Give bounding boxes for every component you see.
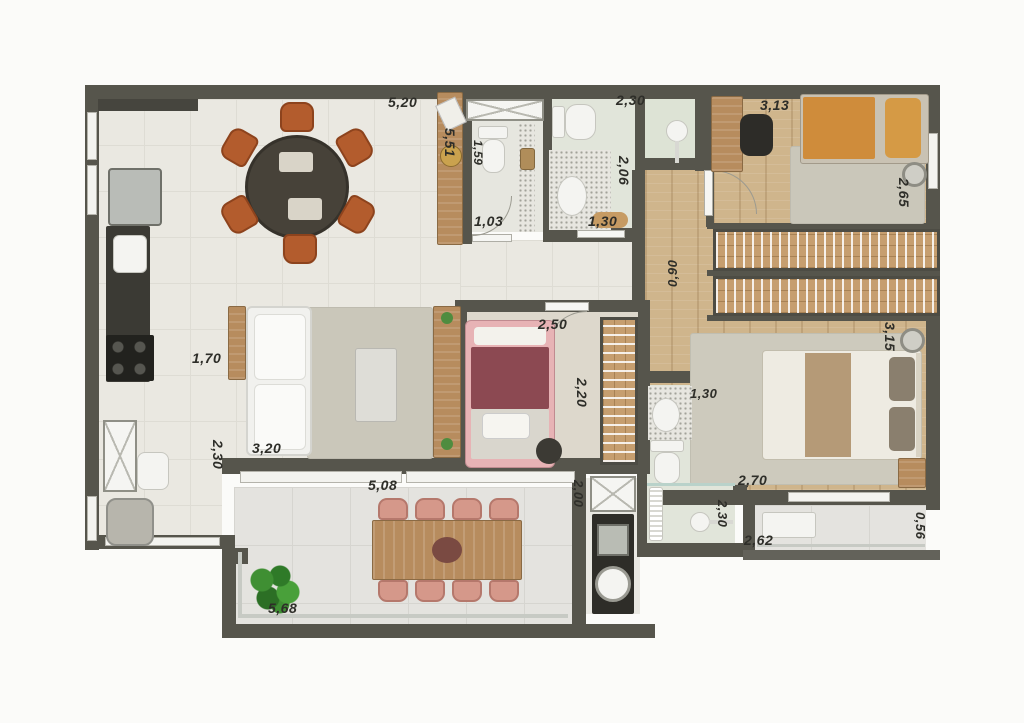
bed-master-pillow-2: [889, 407, 915, 451]
shelf-behind-sofa: [228, 306, 246, 380]
window-master-balcony: [788, 492, 890, 502]
balcony-chair-2: [415, 498, 445, 520]
armchair-nook: [106, 498, 154, 546]
door-bedroom2: [545, 302, 589, 311]
wc-sink: [520, 148, 535, 170]
wc-granite-strip: [518, 123, 535, 232]
dim-bath1-width: 2,30: [616, 92, 645, 108]
dim-bath1-inner: 1,30: [588, 213, 617, 229]
floor-plan: 5,20 2,30 3,13 5,51 1,59 1,03 1,30 2,06 …: [0, 0, 1024, 723]
dim-balcony2-depth: 0,56: [913, 512, 928, 539]
bed-single-pillow: [885, 98, 921, 158]
dim-service-depth: 2,00: [571, 480, 586, 507]
bath2-sink: [652, 398, 680, 432]
bed-master-pillow-1: [889, 357, 915, 401]
wardrobe-master: [713, 276, 940, 316]
dim-sideboard: 5,51: [442, 128, 458, 157]
shower1-head: [666, 120, 688, 142]
balcony-chair-7: [452, 580, 482, 602]
bed-master-headboard: [916, 353, 921, 457]
dim-master-width: 2,70: [738, 472, 767, 488]
dim-bath1-depth: 2,06: [616, 156, 632, 185]
coffee-table: [355, 348, 397, 422]
dim-living-depth: 2,30: [210, 440, 226, 469]
dim-wc-width: 1,03: [474, 213, 503, 229]
service-tank: [597, 524, 629, 556]
cooktop: [106, 335, 154, 381]
wardrobe-bedroom1: [713, 229, 940, 271]
dim-kitchen-pass: 1,70: [192, 350, 221, 366]
desk-chair: [740, 114, 773, 156]
dim-bath2-width: 1,30: [690, 386, 717, 401]
window-left-3: [87, 496, 97, 541]
dim-wc-depth: 1,59: [471, 140, 485, 165]
wall-bath2-bottom: [637, 543, 753, 557]
balcony-sliding-door-2: [406, 471, 575, 483]
bath2-toilet-bowl: [654, 452, 680, 484]
balcony-railing-left: [238, 552, 242, 618]
dim-master-depth: 3,15: [882, 322, 898, 351]
tall-cabinet: [103, 420, 137, 492]
shower1-arm: [675, 141, 679, 163]
fridge: [108, 168, 162, 226]
bed-single: [800, 94, 929, 164]
wc-overhead-cabinet: [466, 99, 544, 121]
dim-balcony2-width: 2,62: [744, 532, 773, 548]
shower2-head: [690, 512, 710, 532]
side-table-nook: [137, 452, 169, 490]
dim-bedroom1-width: 3,13: [760, 97, 789, 113]
balcony-chair-5: [378, 580, 408, 602]
dim-sofa-width: 3,20: [252, 440, 281, 456]
wall-corridor-left: [632, 170, 645, 302]
balcony2-railing: [757, 544, 925, 547]
window-left-1: [87, 112, 97, 160]
balcony-centerpiece: [432, 537, 462, 563]
sofa-cushion-1: [254, 314, 306, 380]
bed2-small-pillow: [482, 413, 530, 439]
sofa: [246, 306, 312, 456]
bed-master: [762, 350, 922, 460]
door-bedroom1: [704, 170, 713, 216]
bed-master-throw: [805, 353, 851, 457]
dim-balcony-open: 5,08: [368, 477, 397, 493]
dim-bath2-depth: 2,30: [715, 500, 730, 527]
kitchen-sink: [113, 235, 147, 273]
door-bathroom1: [577, 230, 625, 238]
washing-machine: [595, 566, 631, 602]
bath2-shower-bench: [649, 487, 663, 541]
wall-shower1-bottom: [635, 158, 707, 170]
ceiling-fan-2: [900, 328, 925, 353]
window-bedroom1: [928, 133, 938, 189]
place-setting-2: [288, 198, 322, 220]
bed2-blanket: [471, 347, 549, 409]
dim-dining-width: 5,20: [388, 94, 417, 110]
wc-toilet-tank: [478, 126, 508, 139]
wall-balcony-corner: [222, 548, 248, 564]
desk: [711, 96, 743, 172]
wc-toilet-bowl: [482, 139, 505, 173]
place-setting-1: [279, 152, 313, 172]
balcony-chair-8: [489, 580, 519, 602]
floor-hallway: [460, 240, 640, 302]
dim-bedroom2-depth: 2,20: [574, 378, 590, 407]
bath2-shower-glass: [647, 483, 735, 486]
balcony-chair-3: [452, 498, 482, 520]
wall-balcony2-bottom: [743, 550, 940, 560]
dining-table: [245, 135, 349, 239]
bath1-toilet-tank: [552, 106, 565, 138]
dining-chair-1: [280, 102, 314, 132]
window-left-2: [87, 165, 97, 215]
dining-chair-4: [283, 234, 317, 264]
console-plant-1: [441, 312, 453, 324]
bath1-toilet-bowl: [565, 104, 596, 140]
service-cabinet: [590, 476, 636, 512]
balcony-chair-6: [415, 580, 445, 602]
dim-bedroom2-width: 2,50: [538, 316, 567, 332]
balcony-chair-4: [489, 498, 519, 520]
wall-balcony-bottom: [222, 624, 655, 638]
dim-bedroom1-depth: 2,65: [896, 178, 912, 207]
kitchen-upper-cabinet: [98, 99, 198, 111]
tv-console: [433, 306, 461, 458]
nightstand: [898, 458, 926, 488]
console-plant-2: [441, 438, 453, 450]
bath1-sink: [557, 176, 587, 216]
dim-balcony-width: 5,68: [268, 600, 297, 616]
bed-single-blanket: [803, 97, 875, 159]
bedroom2-stool: [536, 438, 562, 464]
bath2-toilet-tank: [650, 440, 684, 452]
dim-corridor: 0,90: [665, 260, 680, 287]
bed2-pillows: [474, 327, 546, 345]
balcony-chair-1: [378, 498, 408, 520]
wardrobe-bedroom2: [600, 317, 638, 465]
